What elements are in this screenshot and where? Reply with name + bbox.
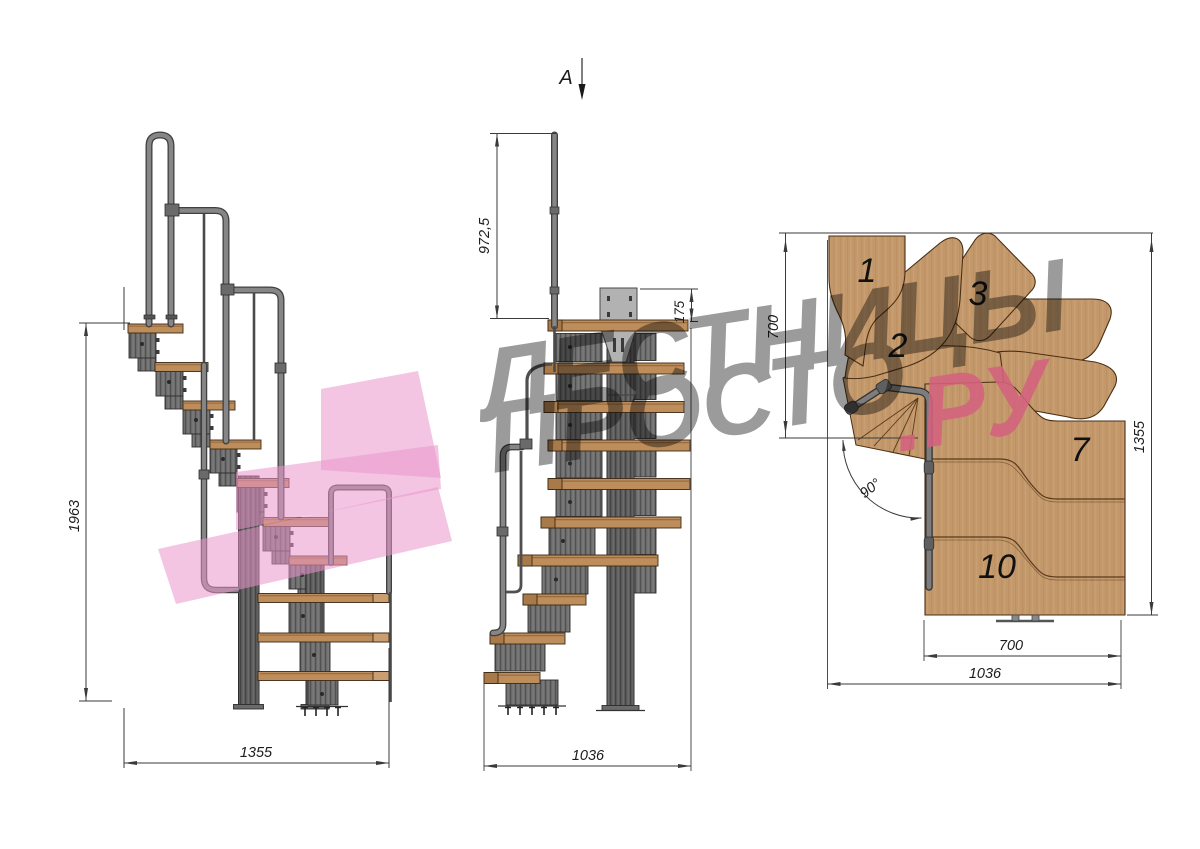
svg-text:1963: 1963 bbox=[67, 500, 83, 532]
svg-text:1355: 1355 bbox=[1132, 420, 1148, 453]
svg-text:A: A bbox=[558, 67, 572, 89]
svg-text:1355: 1355 bbox=[240, 745, 273, 761]
svg-text:1036: 1036 bbox=[572, 748, 605, 764]
svg-text:972,5: 972,5 bbox=[477, 217, 493, 254]
svg-text:1036: 1036 bbox=[969, 666, 1002, 682]
svg-text:700: 700 bbox=[999, 638, 1023, 654]
svg-text:7: 7 bbox=[1071, 431, 1091, 469]
svg-text:10: 10 bbox=[978, 548, 1016, 586]
